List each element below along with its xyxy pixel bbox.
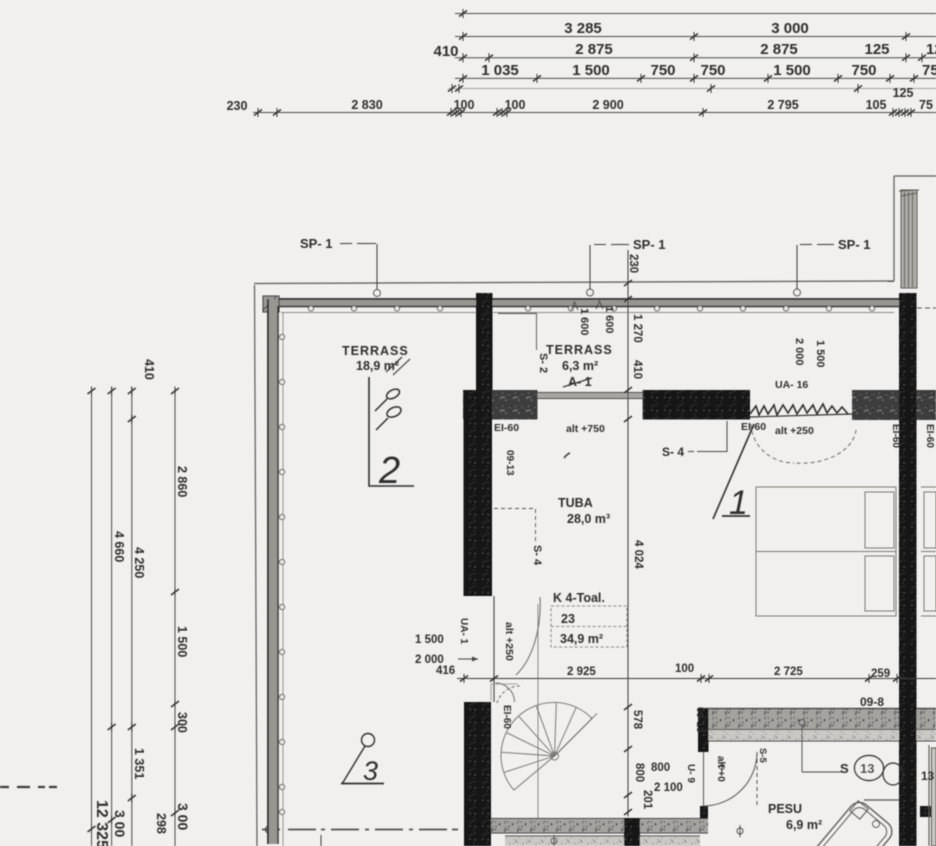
svg-text:23: 23: [561, 612, 575, 626]
svg-text:12 325: 12 325: [93, 800, 110, 846]
svg-text:1 600: 1 600: [603, 306, 615, 334]
svg-text:1 500: 1 500: [572, 62, 610, 79]
svg-text:4 250: 4 250: [132, 547, 146, 578]
svg-text:09-8: 09-8: [860, 695, 884, 709]
svg-text:4 660: 4 660: [112, 531, 126, 562]
svg-text:1 600: 1 600: [578, 308, 590, 336]
svg-text:1 500: 1 500: [773, 62, 811, 79]
svg-text:100: 100: [454, 98, 475, 112]
svg-text:2 830: 2 830: [351, 98, 382, 112]
svg-text:EI-60: EI-60: [890, 424, 901, 448]
svg-text:416: 416: [436, 665, 455, 677]
svg-text:300: 300: [175, 712, 189, 733]
svg-text:230: 230: [227, 99, 248, 113]
svg-text:SP- 1: SP- 1: [838, 237, 871, 252]
svg-text:S: S: [840, 761, 849, 776]
svg-text:alt +0: alt +0: [715, 756, 726, 782]
svg-text:EI-60: EI-60: [494, 422, 519, 434]
svg-text:125: 125: [893, 86, 914, 100]
svg-text:3 00: 3 00: [112, 810, 128, 837]
svg-text:2 000: 2 000: [793, 338, 805, 366]
svg-text:750: 750: [851, 62, 876, 79]
svg-text:alt +750: alt +750: [566, 423, 605, 435]
svg-text:2 100: 2 100: [654, 782, 683, 794]
svg-text:1 035: 1 035: [481, 62, 519, 79]
svg-text:1 500: 1 500: [814, 340, 826, 368]
svg-text:2 875: 2 875: [575, 41, 613, 58]
svg-text:SP- 1: SP- 1: [300, 236, 333, 251]
svg-text:1 500: 1 500: [175, 626, 189, 657]
svg-text:750: 750: [700, 62, 725, 79]
svg-text:75: 75: [922, 62, 936, 79]
svg-text:1: 1: [729, 484, 748, 522]
svg-text:3 000: 3 000: [771, 20, 809, 37]
svg-text:100: 100: [505, 98, 526, 112]
svg-text:UA- 16: UA- 16: [775, 379, 808, 391]
svg-text:259: 259: [871, 668, 890, 680]
svg-text:105: 105: [866, 98, 887, 112]
svg-text:2 860: 2 860: [175, 466, 189, 497]
svg-text:alt +250: alt +250: [775, 425, 814, 437]
svg-text:TUBA: TUBA: [558, 496, 593, 510]
svg-text:6,9 m²: 6,9 m²: [786, 818, 822, 832]
svg-text:298: 298: [154, 813, 168, 834]
svg-text:S-5: S-5: [757, 748, 768, 764]
svg-text:100: 100: [675, 663, 694, 675]
svg-text:75: 75: [919, 98, 933, 112]
svg-text:410: 410: [631, 360, 643, 379]
svg-text:EI-60: EI-60: [741, 421, 766, 433]
svg-text:09-13: 09-13: [694, 707, 705, 733]
svg-text:800: 800: [651, 762, 670, 774]
svg-text:2 875: 2 875: [760, 41, 798, 58]
svg-text:EI-60: EI-60: [924, 424, 935, 448]
svg-text:1 351: 1 351: [132, 748, 146, 779]
svg-text:13: 13: [921, 769, 935, 783]
svg-text:2 925: 2 925: [567, 666, 596, 678]
svg-text:410: 410: [142, 359, 156, 380]
svg-text:PESU: PESU: [768, 802, 802, 816]
svg-text:13: 13: [860, 761, 874, 776]
svg-text:800: 800: [633, 763, 645, 782]
svg-text:alt +250: alt +250: [503, 622, 515, 661]
svg-text:K 4-Toal.: K 4-Toal.: [553, 591, 605, 605]
svg-text:3 00: 3 00: [175, 803, 191, 830]
svg-text:2: 2: [378, 450, 400, 492]
svg-text:12: 12: [926, 41, 936, 58]
svg-text:34,9 m²: 34,9 m²: [560, 632, 603, 646]
svg-text:S- 4: S- 4: [531, 545, 543, 566]
svg-text:2 795: 2 795: [767, 98, 798, 112]
svg-text:1 270: 1 270: [631, 314, 643, 343]
svg-text:2 900: 2 900: [592, 98, 623, 112]
svg-text:28,0 m³: 28,0 m³: [567, 512, 610, 526]
svg-text:410: 410: [433, 43, 458, 60]
svg-text:3: 3: [363, 756, 378, 786]
svg-text:U- 9: U- 9: [685, 764, 696, 783]
svg-text:09-13: 09-13: [504, 450, 515, 476]
svg-text:750: 750: [650, 62, 675, 79]
svg-text:4 024: 4 024: [632, 540, 644, 569]
svg-text:230: 230: [627, 254, 639, 273]
svg-text:TERRASS: TERRASS: [546, 343, 613, 357]
svg-text:S- 2: S- 2: [537, 353, 549, 373]
svg-text:3 285: 3 285: [564, 20, 602, 37]
svg-text:TERRASS: TERRASS: [342, 344, 409, 358]
svg-text:578: 578: [631, 710, 643, 730]
svg-text:1 500: 1 500: [415, 634, 444, 646]
svg-text:201: 201: [641, 790, 653, 810]
svg-text:EI-60: EI-60: [501, 705, 512, 729]
svg-text:SP- 1: SP- 1: [633, 237, 666, 252]
svg-text:2 725: 2 725: [774, 666, 803, 678]
svg-text:S- 4: S- 4: [662, 445, 684, 459]
svg-text:6,3 m²: 6,3 m²: [562, 359, 598, 373]
svg-text:UA- 1: UA- 1: [458, 618, 469, 645]
svg-text:125: 125: [864, 41, 889, 58]
